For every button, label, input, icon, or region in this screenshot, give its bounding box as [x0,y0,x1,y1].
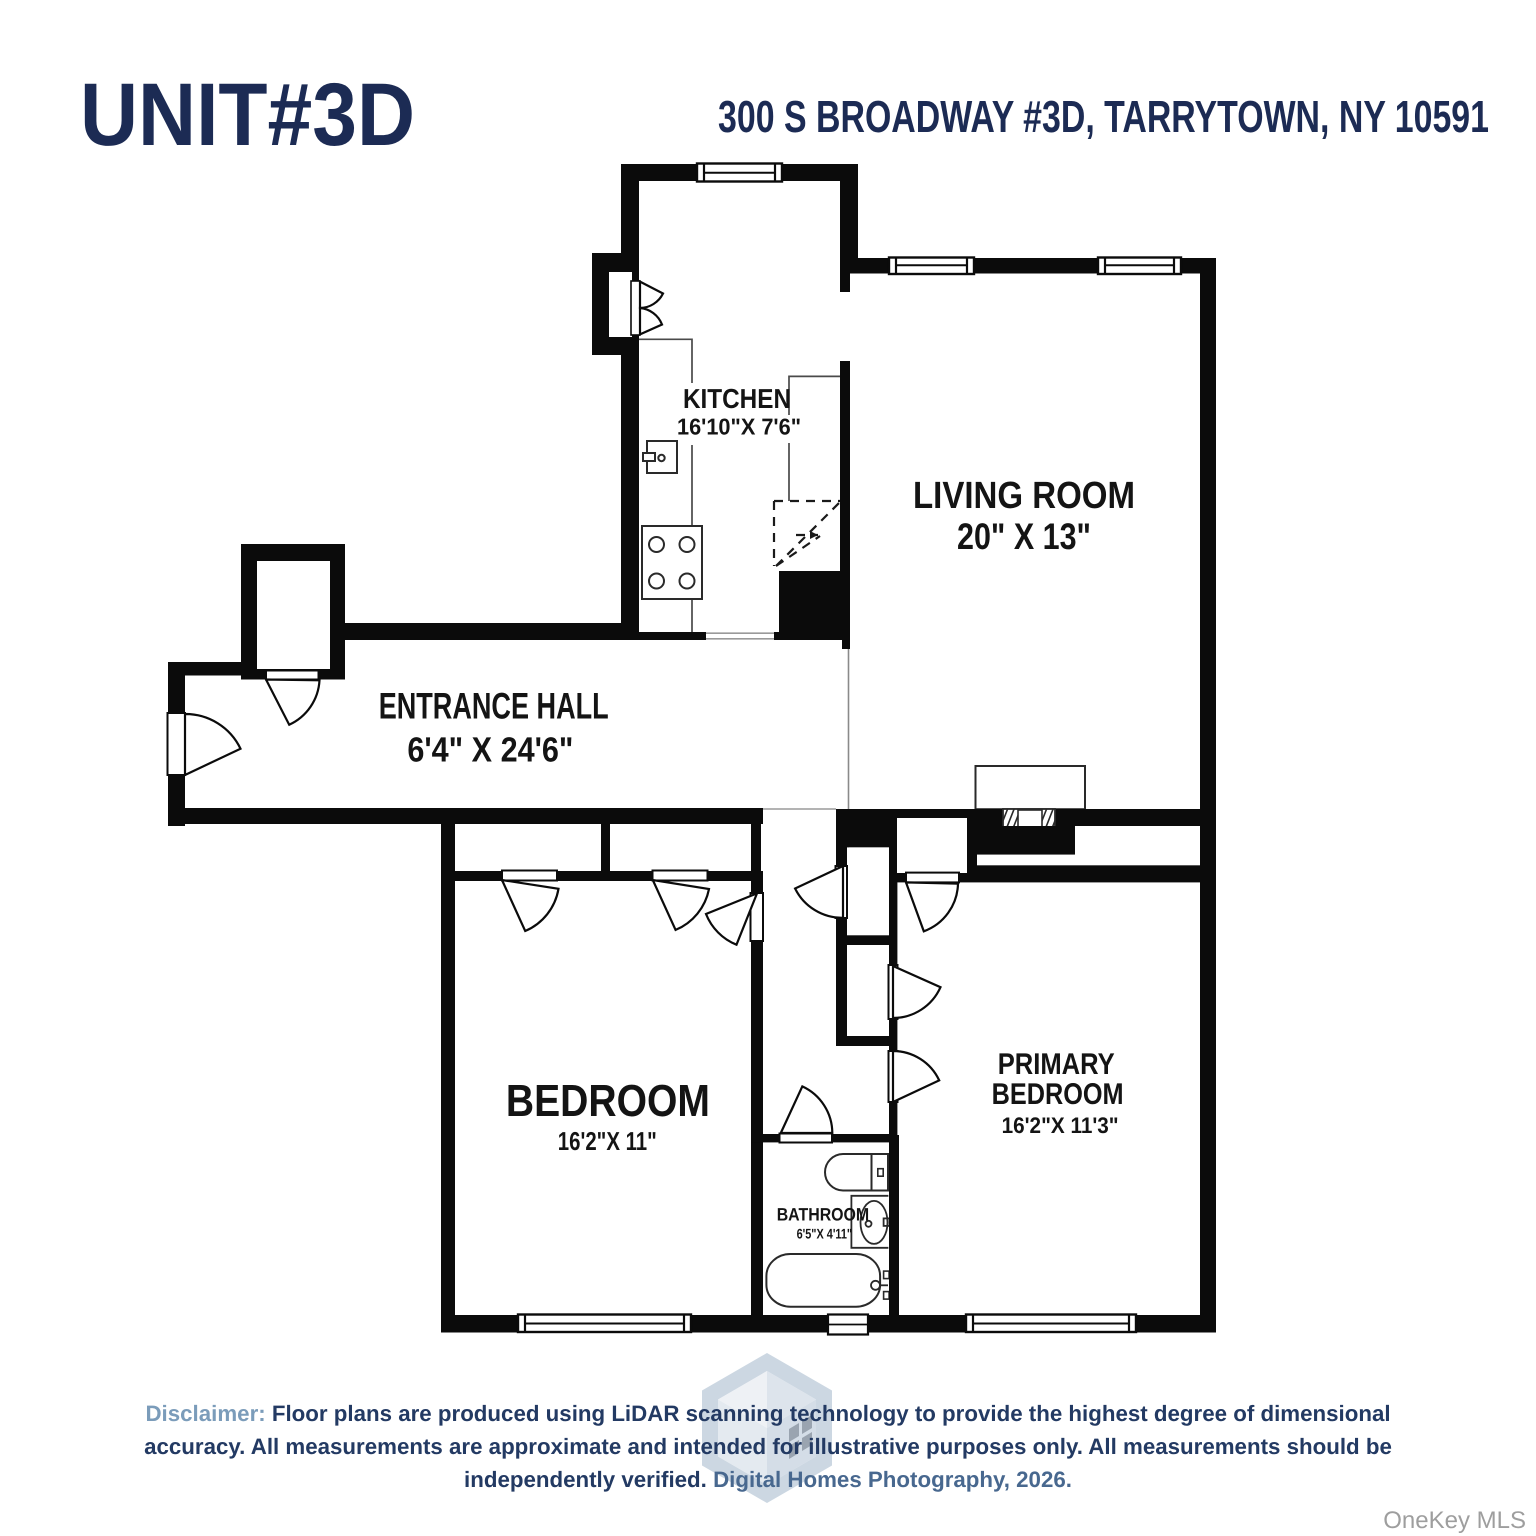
svg-text:20" X 13": 20" X 13" [957,516,1091,557]
svg-text:16'10"X 7'6": 16'10"X 7'6" [677,414,801,440]
svg-text:16'2"X 11": 16'2"X 11" [558,1126,657,1156]
svg-text:16'2"X 11'3": 16'2"X 11'3" [1002,1113,1119,1138]
svg-text:KITCHEN: KITCHEN [683,383,791,414]
svg-text:LIVING ROOM: LIVING ROOM [913,475,1135,517]
svg-text:accuracy. All measurements are: accuracy. All measurements are approxima… [144,1434,1392,1459]
svg-text:independently verified. Digita: independently verified. Digital Homes Ph… [464,1467,1072,1492]
svg-text:UNIT#3D: UNIT#3D [80,64,415,164]
svg-text:BEDROOM: BEDROOM [506,1075,710,1126]
svg-text:BEDROOM: BEDROOM [992,1078,1124,1111]
svg-text:ENTRANCE HALL: ENTRANCE HALL [379,685,609,726]
svg-text:6'5"X 4'11": 6'5"X 4'11" [797,1226,853,1242]
svg-text:6'4" X 24'6": 6'4" X 24'6" [407,731,573,770]
svg-text:BATHROOM: BATHROOM [777,1205,870,1225]
svg-text:300 S BROADWAY #3D, TARRYTOWN,: 300 S BROADWAY #3D, TARRYTOWN, NY 10591 [718,91,1489,142]
svg-text:PRIMARY: PRIMARY [998,1048,1115,1081]
svg-text:OneKey MLS: OneKey MLS [1383,1507,1526,1534]
svg-text:Disclaimer: Floor plans are pr: Disclaimer: Floor plans are produced usi… [145,1401,1390,1426]
